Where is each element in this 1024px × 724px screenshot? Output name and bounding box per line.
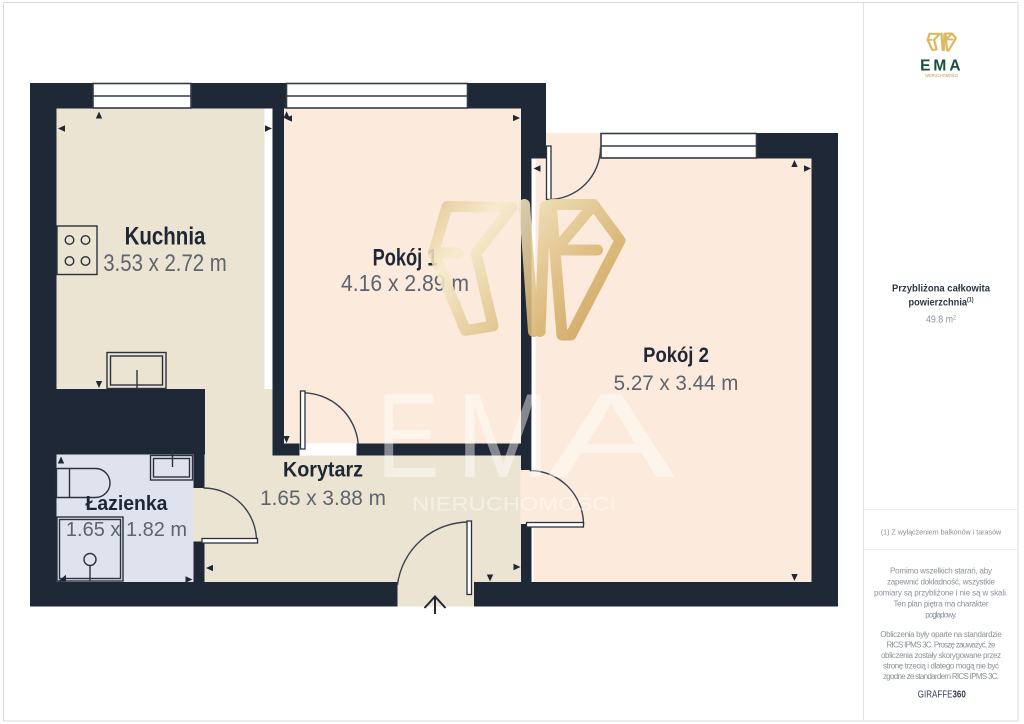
- svg-text:1.65 x 1.82 m: 1.65 x 1.82 m: [66, 519, 187, 541]
- svg-text:3.53 x 2.72 m: 3.53 x 2.72 m: [103, 249, 227, 276]
- svg-text:M: M: [456, 369, 550, 503]
- svg-text:A: A: [547, 368, 675, 502]
- svg-text:zgodne ze standardem RICS IPMS: zgodne ze standardem RICS IPMS 3C.: [883, 672, 999, 681]
- svg-text:Obliczenia były oparte na stan: Obliczenia były oparte na standardzie: [880, 630, 1002, 639]
- svg-text:RICS IPMS 3C. Proszę zauważyć,: RICS IPMS 3C. Proszę zauważyć, że: [887, 641, 997, 650]
- svg-text:1.65 x 3.88 m: 1.65 x 3.88 m: [260, 487, 386, 510]
- svg-text:powierzchnia(1): powierzchnia(1): [909, 297, 974, 309]
- svg-text:Łazienka: Łazienka: [86, 493, 169, 515]
- svg-text:NIERUCHOMOŚCI: NIERUCHOMOŚCI: [412, 494, 616, 516]
- svg-text:Pokój 1: Pokój 1: [373, 244, 438, 271]
- svg-text:(1) Z wyłączeniem balkonów i t: (1) Z wyłączeniem balkonów i tarasów: [881, 528, 1002, 537]
- svg-text:49.8 m2: 49.8 m2: [926, 315, 957, 326]
- svg-text:pomiary są przybliżone i nie s: pomiary są przybliżone i nie są w skali.: [874, 589, 1008, 598]
- svg-text:Kuchnia: Kuchnia: [125, 222, 206, 250]
- svg-text:E: E: [377, 369, 439, 503]
- svg-text:Korytarz: Korytarz: [283, 459, 363, 482]
- svg-text:stronę trzecią i dlatego mogą: stronę trzecią i dlatego mogą nie być: [883, 662, 999, 671]
- svg-text:GIRAFFE360: GIRAFFE360: [918, 689, 966, 700]
- svg-text:EMA: EMA: [920, 58, 963, 75]
- svg-text:poglądowy.: poglądowy.: [925, 611, 957, 620]
- svg-text:Pomimo wszelkich starań, aby: Pomimo wszelkich starań, aby: [890, 567, 992, 576]
- svg-text:Pokój 2: Pokój 2: [643, 344, 709, 367]
- svg-text:Przybliżona całkowita: Przybliżona całkowita: [892, 283, 990, 295]
- svg-text:NIERUCHOMOŚCI: NIERUCHOMOŚCI: [925, 71, 958, 78]
- svg-text:obliczenia zostały skorygowane: obliczenia zostały skorygowane przez: [881, 651, 1001, 660]
- svg-text:zapewnić dokładność, wszystkie: zapewnić dokładność, wszystkie: [887, 578, 996, 587]
- svg-text:Ten plan piętra ma charakter: Ten plan piętra ma charakter: [894, 600, 989, 609]
